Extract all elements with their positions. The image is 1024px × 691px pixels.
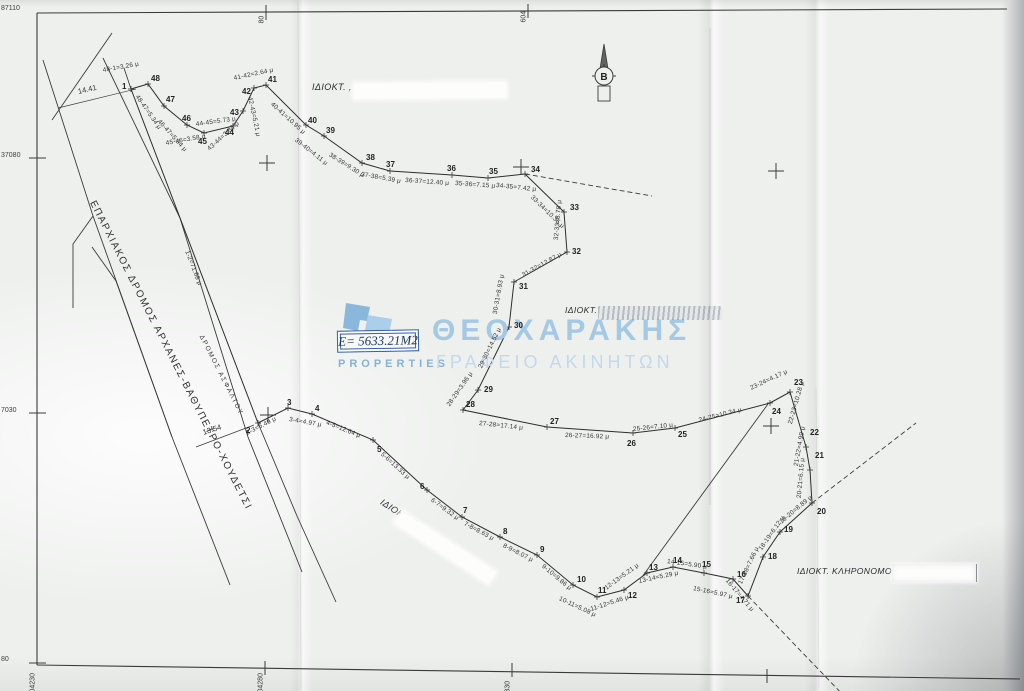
point-number: 6 <box>420 483 424 491</box>
point-number: 31 <box>519 283 528 291</box>
redaction-box-top <box>354 82 506 98</box>
point-number: 26 <box>627 440 636 448</box>
point-number: 9 <box>540 546 544 554</box>
point-number: 2 <box>246 427 250 435</box>
point-number: 25 <box>678 431 687 439</box>
point-number: 30 <box>514 322 523 330</box>
redaction-box-southeast <box>892 564 977 582</box>
point-number: 18 <box>768 553 777 561</box>
point-number: 34 <box>531 166 540 174</box>
point-number: 14 <box>673 557 682 565</box>
point-number: 20 <box>817 508 826 516</box>
point-number: 39 <box>326 127 335 135</box>
point-number: 13 <box>649 564 658 572</box>
grid-coordinate: 04280 <box>258 673 265 691</box>
point-number: 44 <box>225 129 234 137</box>
point-number: 46 <box>182 115 191 123</box>
north-label: Β <box>600 72 607 83</box>
watermark-subtitle: ΓΡΑΦΕΙΟ ΑΚΙΝΗΤΩΝ <box>436 352 674 373</box>
point-number: 33 <box>570 204 579 212</box>
area-label-box: Ε= 5633.21Μ2 <box>337 329 419 352</box>
grid-coordinate: 37080 <box>1 152 20 159</box>
owner-label-middle: ΙΔΙΟΚΤ. <box>565 305 597 315</box>
point-number: 16 <box>737 571 746 579</box>
point-number: 38 <box>366 154 375 162</box>
point-number: 41 <box>268 76 277 84</box>
point-number: 42 <box>242 88 251 96</box>
parcel-area-value: Ε= 5633.21Μ2 <box>338 332 418 349</box>
point-number: 15 <box>702 561 711 569</box>
point-number: 47 <box>166 96 175 104</box>
point-number: 17 <box>736 597 745 605</box>
point-number: 11 <box>598 587 606 595</box>
north-arrow: Β <box>586 42 622 108</box>
point-number: 22 <box>810 429 819 437</box>
point-number: 5 <box>377 446 381 454</box>
point-number: 45 <box>198 138 207 146</box>
grid-coordinate: 80 <box>259 16 266 24</box>
road-line <box>93 216 230 585</box>
dimension-line <box>58 89 136 108</box>
grid-coordinate: 604 <box>521 11 528 23</box>
point-number: 24 <box>772 408 781 416</box>
point-number: 23 <box>794 379 803 387</box>
north-arrow-base <box>598 86 610 101</box>
owner-label-southeast: ΙΔΙΟΚΤ. ΚΛΗΡΟΝΟΜΟΙ Γ <box>797 566 903 576</box>
dashed-extension <box>812 423 916 503</box>
grid-coordinate: 7030 <box>1 407 17 414</box>
road-edge-line <box>258 423 336 602</box>
point-number: 4 <box>315 405 319 413</box>
grid-coordinate: 87110 <box>1 5 20 12</box>
point-number: 8 <box>503 528 507 536</box>
grid-coordinate: 80 <box>1 656 9 663</box>
redaction-scribble-middle <box>598 306 722 320</box>
grid-coordinate: 330 <box>505 681 512 691</box>
point-number: 27 <box>550 418 559 426</box>
scanned-survey-map: Β PROPERTIES Ε= 5633.21Μ2 ΘΕΟΧΑΡΑΚΗΣ ΓΡΑ… <box>0 0 1024 691</box>
point-number: 43 <box>230 109 239 117</box>
paper-crease <box>298 2 301 689</box>
point-number: 12 <box>628 592 637 600</box>
point-number: 10 <box>577 576 586 584</box>
point-number: 21 <box>815 452 824 460</box>
properties-logo-text: PROPERTIES <box>338 358 449 370</box>
point-number: 36 <box>447 165 456 173</box>
point-number: 48 <box>151 75 160 83</box>
point-number: 3 <box>287 399 291 407</box>
point-number: 1 <box>122 83 126 91</box>
frame-bottom <box>37 665 1020 679</box>
point-number: 32 <box>572 248 581 256</box>
point-number: 35 <box>489 168 498 176</box>
point-number: 7 <box>463 507 467 515</box>
point-number: 19 <box>784 526 793 534</box>
point-number: 28 <box>466 401 475 409</box>
point-number: 40 <box>308 117 317 125</box>
point-number: 29 <box>484 386 493 394</box>
point-number: 37 <box>386 161 395 169</box>
owner-label-top: ΙΔΙΟΚΤ. , <box>312 82 352 92</box>
grid-coordinate: 04230 <box>30 673 37 691</box>
